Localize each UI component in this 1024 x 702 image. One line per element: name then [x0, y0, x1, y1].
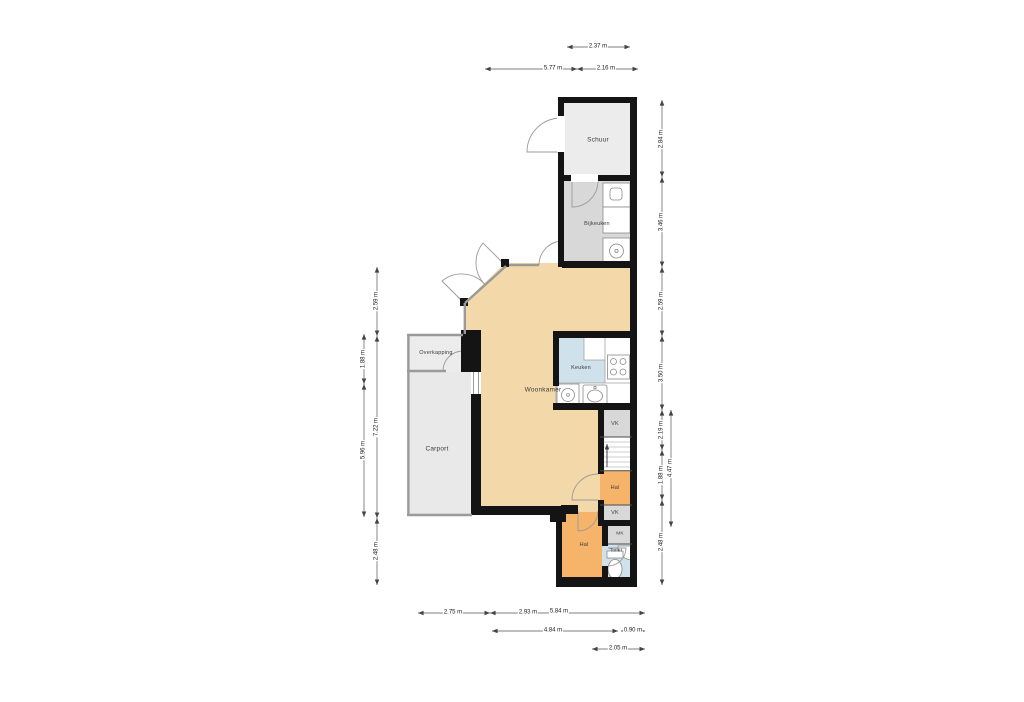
room-label-keuken: Keuken — [571, 365, 591, 371]
room-label-woonkamer: Woonkamer — [525, 387, 562, 394]
dim-label: 2.48 m — [659, 532, 666, 552]
dim-label: 2.48 m — [374, 541, 381, 561]
room-label-carport: Carport — [425, 446, 448, 453]
dim-label: 3.50 m — [659, 363, 666, 383]
room-label-toilet: Toilet — [610, 549, 622, 554]
dim-label: 0.90 m — [623, 628, 643, 635]
dim-label: 4.84 m — [543, 628, 563, 635]
dim-label: 2.84 m — [659, 129, 666, 149]
dim-label: 4.47 m — [668, 458, 675, 478]
dim-label: 2.93 m — [518, 610, 538, 617]
room-label-hal-mid: Hal — [611, 485, 620, 491]
room-label-hal-entry: Hal — [580, 542, 589, 548]
dim-label: 5.84 m — [549, 609, 569, 616]
dim-label: 2.59 m — [374, 291, 381, 311]
room-label-schuur: Schuur — [587, 137, 609, 144]
room-label-vk-upper: VK — [611, 421, 619, 427]
floorplan-page: Schuur Bijkeuken Woonkamer Keuken Overka… — [0, 0, 1024, 702]
room-label-overkapping: Overkapping — [419, 350, 452, 356]
room-label-mk: MK — [616, 532, 624, 537]
dim-label: 3.46 m — [659, 212, 666, 232]
dim-label: 2.19 m — [659, 420, 666, 440]
dim-label: 2.37 m — [588, 44, 608, 51]
floorplan-drawing — [0, 0, 1024, 702]
room-label-vk-lower: VK — [611, 510, 619, 516]
dim-label: 2.59 m — [659, 291, 666, 311]
dim-label: 7.22 m — [374, 417, 381, 437]
floor-carport — [407, 372, 479, 515]
dim-label: 1.88 m — [361, 349, 368, 369]
door-schuur — [527, 118, 561, 152]
stove-icon — [608, 355, 630, 379]
dim-label: 2.16 m — [596, 66, 616, 73]
dim-label: 1.88 m — [659, 465, 666, 485]
room-label-bijkeuken: Bijkeuken — [584, 221, 610, 227]
dim-label: 5.96 m — [361, 440, 368, 460]
dim-label: 5.77 m — [543, 66, 563, 73]
dim-label: 2.05 m — [608, 646, 628, 653]
dim-label: 2.75 m — [443, 610, 463, 617]
